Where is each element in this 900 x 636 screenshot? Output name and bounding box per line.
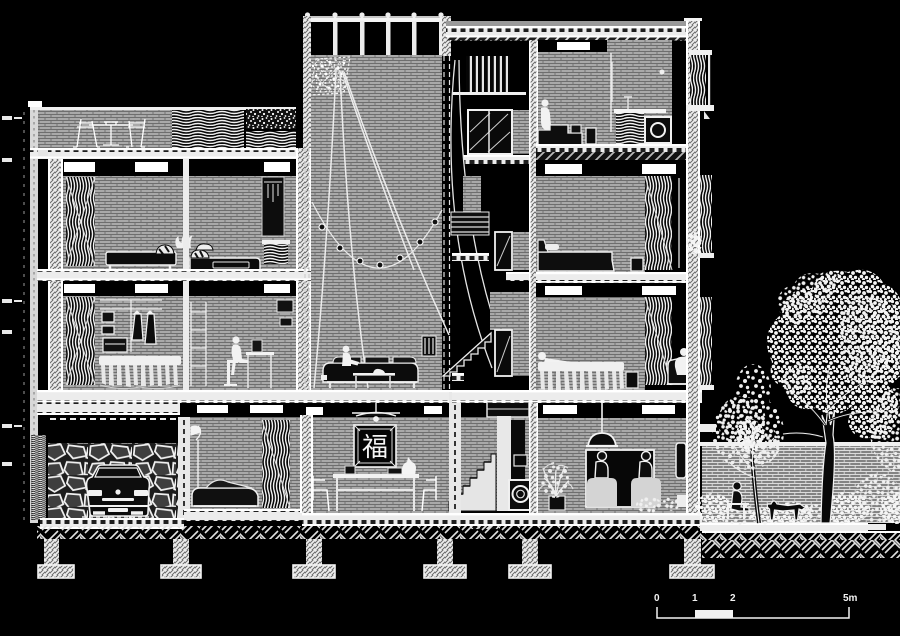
- svg-text:0: 0: [654, 593, 660, 604]
- svg-text:2: 2: [730, 593, 736, 604]
- svg-text:福: 福: [362, 432, 388, 462]
- svg-text:5m: 5m: [843, 593, 858, 604]
- svg-text:1: 1: [692, 593, 698, 604]
